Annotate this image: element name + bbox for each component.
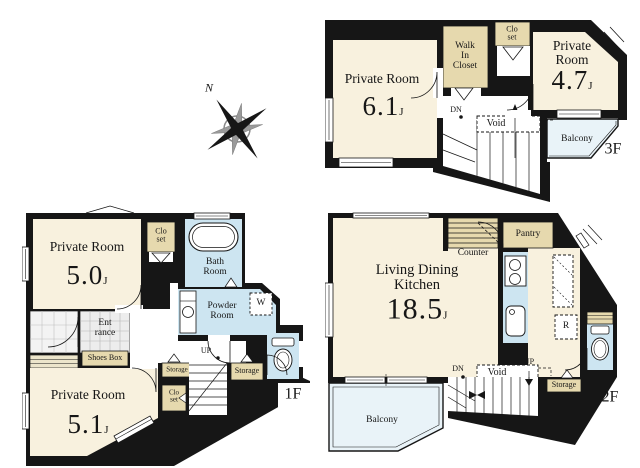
room-3f-a-name: Private Room xyxy=(345,72,420,86)
balcony-3f-label: Balcony xyxy=(561,135,593,145)
floor-3f-tag: 3F xyxy=(605,142,622,159)
bathtub-icon xyxy=(189,223,238,251)
room-3f-b-area: 4.7J xyxy=(551,66,592,94)
stove-icon xyxy=(505,256,526,286)
sink-icon xyxy=(506,306,525,336)
floor-2f-tag: 2F xyxy=(602,390,619,407)
closet-1f-b-label: Clo set xyxy=(169,390,179,405)
dn-2f-label: DN xyxy=(452,365,464,373)
floor-2f-drawing xyxy=(325,205,640,468)
shoes-box-label: Shoes Box xyxy=(88,354,122,362)
entrance-steps xyxy=(30,355,78,368)
pantry-label: Pantry xyxy=(516,230,541,240)
ldk-name: Living Dining Kitchen xyxy=(376,263,459,293)
cupboard-space xyxy=(553,255,573,307)
floor-plan-1f: Private Room 5.0J Clo set Bath Room Powd… xyxy=(22,205,322,468)
storage-2f-label: Storage xyxy=(552,381,576,389)
room-1f-b-name: Private Room xyxy=(51,388,126,402)
closet-3f-label: Clo set xyxy=(506,26,518,43)
compass: N xyxy=(192,74,276,166)
counter-label: Counter xyxy=(458,249,489,259)
dn-3f-label: DN xyxy=(450,106,462,114)
room-1f-a-name: Private Room xyxy=(50,240,125,254)
floor-1f-tag: 1F xyxy=(285,387,302,404)
void-3f-label: Void xyxy=(487,119,506,130)
storage-1f-a-label: Storage xyxy=(166,366,187,373)
washer-label: W xyxy=(257,299,266,309)
balcony-2f-label: Balcony xyxy=(366,416,398,426)
room-1f-b-area: 5.1J xyxy=(67,410,108,438)
up-2f-label: UP xyxy=(524,358,534,366)
room-3f-a-area: 6.1J xyxy=(362,92,403,120)
stairs-1f xyxy=(189,357,227,415)
closet-1f-a-label: Clo set xyxy=(155,228,167,245)
floor-plan-2f: Living Dining Kitchen 18.5J Counter Pant… xyxy=(325,205,640,468)
room-1f-a-area: 5.0J xyxy=(66,261,107,289)
walk-in-closet-label: Walk In Closet xyxy=(453,42,477,72)
bath-room-label: Bath Room xyxy=(203,258,226,278)
up-1f-label: UP xyxy=(201,347,211,355)
room-3f-b-name: Private Room xyxy=(538,39,606,67)
entrance-label: Ent rance xyxy=(95,319,116,339)
north-label: N xyxy=(205,82,213,95)
void-2f-label: Void xyxy=(488,368,507,379)
powder-room-label: Powder Room xyxy=(207,302,236,322)
ldk-area-label: 18.5J xyxy=(387,293,448,325)
floor-plan-canvas: N xyxy=(0,0,640,468)
floor-plan-3f: Private Room 6.1J Private Room 4.7J Walk… xyxy=(325,10,640,202)
refrigerator-label: R xyxy=(563,322,569,332)
storage-1f-b-label: Storage xyxy=(235,367,259,375)
